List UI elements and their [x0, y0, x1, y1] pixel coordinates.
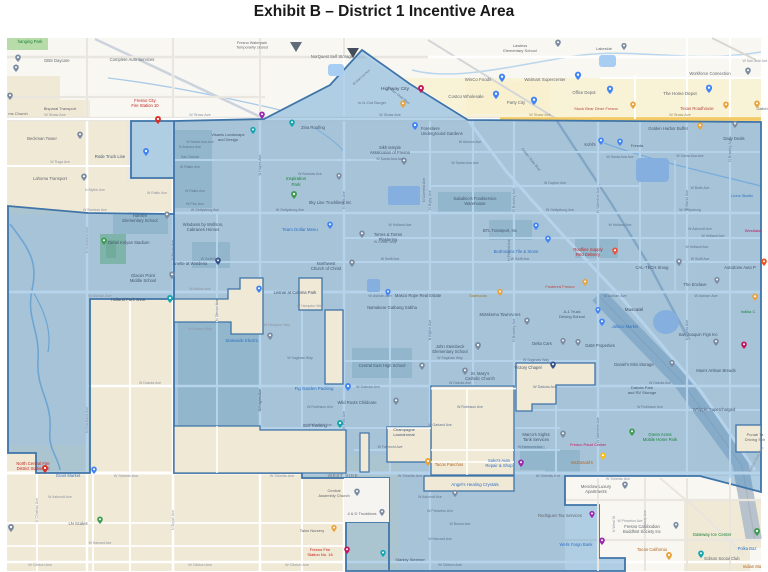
svg-text:W Holland Ave: W Holland Ave [702, 234, 725, 238]
svg-text:Golden State Blvd: Golden State Blvd [748, 446, 765, 473]
svg-text:Motskema TownAcres: Motskema TownAcres [480, 312, 521, 317]
svg-text:W Santa Ana Ave: W Santa Ana Ave [186, 140, 213, 144]
svg-text:W Robinson Ave: W Robinson Ave [457, 405, 483, 409]
svg-text:Association of Fresno: Association of Fresno [370, 150, 411, 155]
svg-text:Rode Truck Line: Rode Truck Line [95, 154, 126, 159]
svg-text:W Dakota Ave: W Dakota Ave [649, 381, 671, 385]
svg-text:W Princeton Ave: W Princeton Ave [617, 519, 642, 523]
svg-text:Grant Market: Grant Market [56, 473, 81, 478]
svg-text:Mobile Home Park: Mobile Home Park [643, 437, 678, 442]
svg-text:W Clinton Ave: W Clinton Ave [188, 563, 212, 567]
svg-text:Laundromat: Laundromat [393, 432, 415, 437]
svg-text:W Fairmont Ave: W Fairmont Ave [378, 445, 403, 449]
svg-text:N Marty Ave: N Marty Ave [643, 510, 647, 530]
svg-text:W Ashlan Ave: W Ashlan Ave [88, 294, 111, 298]
svg-text:W Clinton Ave: W Clinton Ave [285, 563, 309, 567]
svg-text:Lakeside: Lakeside [596, 46, 613, 51]
svg-text:W Hampton Way: W Hampton Way [297, 304, 324, 308]
svg-text:Station No. 16: Station No. 16 [307, 552, 333, 557]
svg-text:WinCo Foods: WinCo Foods [465, 77, 492, 82]
svg-text:Victory Chapel: Victory Chapel [514, 365, 541, 370]
svg-text:W Brown Ave: W Brown Ave [450, 522, 471, 526]
svg-text:W Griffith Way: W Griffith Way [374, 240, 397, 244]
svg-text:Muscatel: Muscatel [625, 307, 643, 312]
svg-text:W Shields Ave: W Shields Ave [270, 474, 294, 478]
svg-text:N Chateau Ave: N Chateau Ave [35, 498, 39, 522]
svg-text:Elementary School: Elementary School [503, 48, 537, 53]
svg-text:W Shields Ave: W Shields Ave [398, 474, 422, 478]
svg-text:Edison Social Club: Edison Social Club [704, 556, 740, 561]
svg-text:N Grantland Ave: N Grantland Ave [85, 407, 89, 433]
svg-text:Tacos Panchos: Tacos Panchos [435, 462, 463, 467]
svg-text:N Brawley Ave: N Brawley Ave [728, 138, 732, 161]
svg-text:W Garland Ave: W Garland Ave [308, 423, 332, 427]
svg-text:G&M Properties: G&M Properties [585, 343, 615, 348]
svg-text:Golden State Blvd: Golden State Blvd [520, 147, 541, 171]
svg-text:Warehouse: Warehouse [464, 201, 486, 206]
svg-text:N Blythe Ave: N Blythe Ave [428, 320, 432, 341]
svg-text:Stock Bear Diner Fresno: Stock Bear Diner Fresno [574, 106, 619, 111]
svg-text:N Hughes Ave: N Hughes Ave [258, 389, 262, 412]
svg-text:Texas Roadhouse: Texas Roadhouse [680, 106, 714, 111]
svg-text:Middle School: Middle School [130, 278, 156, 283]
svg-text:W Barstow Ave: W Barstow Ave [298, 172, 322, 176]
svg-text:Fresno Waterpark: Fresno Waterpark [237, 41, 267, 45]
svg-text:W Harvard Ave: W Harvard Ave [89, 541, 112, 545]
svg-text:W Santa Ana Ave: W Santa Ana Ave [451, 161, 478, 165]
svg-text:Maa's Artisan Breads: Maa's Artisan Breads [696, 368, 735, 373]
svg-text:W Gettysburg Ave: W Gettysburg Ave [546, 208, 574, 212]
svg-text:W Hampton Way: W Hampton Way [264, 323, 291, 327]
svg-text:Holland Park West: Holland Park West [111, 297, 146, 302]
svg-text:Workforce Connection: Workforce Connection [689, 71, 731, 76]
svg-text:W Shields Ave: W Shields Ave [536, 474, 560, 478]
svg-text:Kohl's: Kohl's [584, 142, 595, 147]
svg-text:Daily Deals: Daily Deals [723, 136, 744, 141]
svg-text:Stanley Steemer: Stanley Steemer [395, 557, 425, 562]
svg-text:N Bryan Ave: N Bryan Ave [171, 240, 175, 260]
svg-text:W Ashlan Ave: W Ashlan Ave [694, 294, 717, 298]
svg-text:W Princeton Ave: W Princeton Ave [427, 509, 453, 513]
svg-text:W Dakota Ave: W Dakota Ave [533, 385, 557, 389]
svg-text:W Gettysburg Ave: W Gettysburg Ave [276, 208, 304, 212]
svg-text:Angel's Healing Crystals: Angel's Healing Crystals [451, 482, 499, 487]
svg-text:W Tioga Ave: W Tioga Ave [50, 160, 70, 164]
svg-text:N Bigby Ave: N Bigby Ave [428, 190, 432, 210]
svg-text:Indian Ma: Indian Ma [743, 564, 762, 569]
svg-text:N Grantland Ave: N Grantland Ave [85, 227, 89, 253]
svg-text:Daniel's Mini Storage: Daniel's Mini Storage [614, 362, 654, 367]
svg-text:W Santa Ana Ave: W Santa Ana Ave [606, 155, 633, 159]
svg-text:NorQuest Self Storage: NorQuest Self Storage [311, 54, 354, 59]
svg-text:and Design: and Design [218, 137, 238, 142]
svg-text:Fostered Fresno: Fostered Fresno [545, 284, 575, 289]
svg-text:W Santa Ana Ave: W Santa Ana Ave [676, 154, 703, 158]
svg-text:W Shaw Ave: W Shaw Ave [44, 113, 65, 117]
svg-text:Party City: Party City [507, 100, 526, 105]
svg-text:Park: Park [291, 182, 301, 187]
svg-text:Driving School: Driving School [559, 314, 585, 319]
svg-text:Wild Roots Childcare: Wild Roots Childcare [337, 400, 377, 405]
svg-text:Red Delivery: Red Delivery [576, 252, 601, 257]
svg-text:Golden Harbor Buffet: Golden Harbor Buffet [648, 126, 688, 131]
svg-text:W Pico Ave: W Pico Ave [186, 202, 204, 206]
svg-text:Wells Fargo Bank: Wells Fargo Bank [560, 542, 594, 547]
svg-text:Elementary School: Elementary School [432, 349, 467, 354]
svg-text:Buddhist Society Inc: Buddhist Society Inc [623, 529, 661, 534]
svg-text:W Ashcroft Ave: W Ashcroft Ave [48, 495, 72, 499]
svg-text:Fire Station 10: Fire Station 10 [131, 103, 159, 108]
svg-text:Cabranes Homes: Cabranes Homes [187, 227, 220, 232]
svg-text:GBS Daycare: GBS Daycare [44, 58, 70, 63]
svg-text:W Rialto Ave: W Rialto Ave [180, 165, 200, 169]
svg-text:N Cornelia Ave: N Cornelia Ave [422, 178, 426, 202]
svg-text:N Valentine Ave: N Valentine Ave [596, 417, 600, 442]
svg-text:W Sussex Way: W Sussex Way [188, 327, 212, 331]
svg-text:Tacos California: Tacos California [637, 547, 667, 552]
svg-text:W Gettysburg Ave: W Gettysburg Ave [191, 208, 219, 212]
svg-text:W Shaw Ave: W Shaw Ave [189, 113, 210, 117]
svg-text:W Robinson Ave: W Robinson Ave [307, 405, 333, 409]
svg-text:W Barstow Ave: W Barstow Ave [83, 208, 107, 212]
svg-text:The Home Depot: The Home Depot [663, 91, 697, 96]
svg-text:hanging Park: hanging Park [18, 39, 44, 44]
svg-text:McDonald's: McDonald's [571, 460, 593, 465]
svg-text:Starbucks: Starbucks [469, 293, 487, 298]
svg-text:W Shields Ave: W Shields Ave [606, 477, 630, 481]
svg-text:W Marconi Ave: W Marconi Ave [352, 68, 371, 86]
svg-text:W Clinton Ave: W Clinton Ave [28, 563, 52, 567]
svg-text:W Alamos Ave: W Alamos Ave [459, 140, 482, 144]
svg-text:Lesnar at Caloma Park: Lesnar at Caloma Park [274, 290, 318, 295]
svg-text:W Harvard Ave: W Harvard Ave [428, 537, 452, 541]
svg-text:W Dayton Ave: W Dayton Ave [544, 181, 566, 185]
svg-text:4 & D Trucklines: 4 & D Trucklines [347, 511, 376, 516]
svg-text:Gateway Ice Center: Gateway Ice Center [693, 532, 732, 537]
svg-text:N Stevon Ave: N Stevon Ave [215, 299, 219, 321]
svg-text:W Shaw Ave: W Shaw Ave [669, 113, 690, 117]
svg-text:W Holland Ave: W Holland Ave [686, 245, 709, 249]
svg-text:Masco Rope Real Estate: Masco Rope Real Estate [395, 293, 442, 298]
svg-text:Bisparal Transport: Bisparal Transport [44, 106, 77, 111]
svg-text:Westlake: Westlake [745, 228, 762, 233]
svg-text:LN Scales: LN Scales [68, 521, 87, 526]
svg-text:Apartments: Apartments [585, 489, 606, 494]
svg-text:Central East High School: Central East High School [359, 363, 406, 368]
svg-text:Jalisco Market: Jalisco Market [612, 324, 640, 329]
svg-text:W Fairmont Ave: W Fairmont Ave [518, 445, 543, 449]
svg-text:W Dakota Ave: W Dakota Ave [139, 381, 161, 385]
svg-text:Whipple Supercharged: Whipple Supercharged [693, 407, 736, 412]
svg-text:Costco Wholesale: Costco Wholesale [448, 94, 484, 99]
svg-text:W Shaw Ave: W Shaw Ave [379, 113, 400, 117]
svg-text:Fredco Paud Center: Fredco Paud Center [570, 442, 607, 447]
svg-text:Underground Gardens: Underground Gardens [421, 131, 463, 136]
svg-text:Polka Baz: Polka Baz [738, 546, 757, 551]
svg-text:W Swift Ave: W Swift Ave [381, 257, 400, 261]
svg-text:W Ashcroft Ave: W Ashcroft Ave [418, 495, 442, 499]
svg-text:Elementary School: Elementary School [122, 218, 157, 223]
svg-text:Bedrosians Tile & Stone: Bedrosians Tile & Stone [494, 249, 539, 254]
svg-text:Driving Sch: Driving Sch [745, 437, 765, 442]
svg-text:W Rialto Ave: W Rialto Ave [185, 189, 205, 193]
svg-text:W Gettysburg: W Gettysburg [679, 208, 700, 212]
svg-text:W Garland Ave: W Garland Ave [428, 423, 452, 427]
svg-text:The Enclave: The Enclave [683, 282, 707, 287]
svg-text:N Polk Ave: N Polk Ave [342, 191, 346, 209]
svg-text:W Dakota Ave: W Dakota Ave [356, 385, 380, 389]
svg-text:Church of Christ: Church of Christ [311, 266, 342, 271]
svg-text:Delta Cars: Delta Cars [532, 341, 552, 346]
svg-text:Assembly Church: Assembly Church [318, 493, 349, 498]
svg-text:W Clinton Ave: W Clinton Ave [438, 563, 462, 567]
svg-text:BTL Transport, Inc: BTL Transport, Inc [483, 228, 517, 233]
svg-text:N Marks Ave: N Marks Ave [685, 320, 689, 340]
svg-text:AutoZone Auto P: AutoZone Auto P [724, 265, 756, 270]
svg-text:N Bryan Ave: N Bryan Ave [171, 510, 175, 530]
svg-text:N Polk Ave: N Polk Ave [342, 411, 346, 429]
svg-text:In-N-Out Burger: In-N-Out Burger [358, 100, 387, 105]
svg-text:Talos Nursery: Talos Nursery [300, 528, 324, 533]
svg-text:Tank Services: Tank Services [523, 437, 549, 442]
svg-text:Anette at Wardena: Anette at Wardena [173, 261, 208, 266]
svg-text:N Valentine Ave: N Valentine Ave [596, 187, 600, 212]
svg-text:and RV Storage: and RV Storage [628, 390, 657, 395]
svg-text:Office Depot: Office Depot [572, 90, 596, 95]
svg-text:W Shaw Ave: W Shaw Ave [529, 113, 550, 117]
svg-text:Namakear Gatbang Sabha: Namakear Gatbang Sabha [367, 305, 417, 310]
svg-text:W Swift Ave: W Swift Ave [201, 257, 220, 261]
svg-text:Statewide Electric: Statewide Electric [225, 338, 258, 343]
svg-text:W Ashlan Ave: W Ashlan Ave [603, 294, 626, 298]
svg-text:Inspiration: Inspiration [286, 176, 307, 181]
svg-text:Walmart Supercenter: Walmart Supercenter [524, 77, 566, 82]
svg-text:Team Dollar Menu: Team Dollar Menu [282, 227, 318, 232]
svg-text:N Brawley Ave: N Brawley Ave [512, 188, 516, 211]
svg-text:Rodriguez Tax Services: Rodriguez Tax Services [538, 513, 582, 518]
svg-text:N Hayes Ave: N Hayes Ave [258, 155, 262, 176]
svg-text:Lions Skatin: Lions Skatin [731, 193, 753, 198]
svg-text:W Swift Ave: W Swift Ave [691, 257, 710, 261]
svg-text:W Ashcroft Ave: W Ashcroft Ave [688, 227, 712, 231]
svg-text:W Butts Ave: W Butts Ave [691, 186, 710, 190]
svg-text:W Saginaw Way: W Saginaw Way [523, 358, 549, 362]
svg-text:N Blythe Ave: N Blythe Ave [85, 188, 105, 192]
svg-text:Galich: Galich [756, 106, 767, 111]
svg-text:N Arizona Ave: N Arizona Ave [179, 145, 201, 149]
svg-text:N Brawley Ave: N Brawley Ave [512, 318, 516, 341]
svg-text:W Holland Ave: W Holland Ave [389, 223, 412, 227]
svg-text:Indika C: Indika C [741, 309, 756, 314]
svg-text:Temporarily closed: Temporarily closed [236, 46, 268, 50]
svg-text:W Saginaw Way: W Saginaw Way [287, 356, 313, 360]
svg-text:W Santa Ana Ave: W Santa Ana Ave [376, 157, 403, 161]
svg-text:W Shields Ave: W Shields Ave [114, 474, 138, 478]
svg-text:W Swift Ave: W Swift Ave [511, 257, 530, 261]
svg-text:W Saginaw Way: W Saginaw Way [437, 356, 463, 360]
svg-text:CAL-TECH Smog: CAL-TECH Smog [635, 265, 669, 270]
svg-text:W Dakota Ave: W Dakota Ave [449, 381, 471, 385]
svg-text:N West St: N West St [612, 516, 616, 532]
svg-text:W Rialto Ave: W Rialto Ave [147, 191, 167, 195]
svg-text:W Ashlan Ave: W Ashlan Ave [189, 287, 211, 291]
svg-text:Derail Kolyan Stadium: Derail Kolyan Stadium [108, 240, 150, 245]
svg-text:Lahoma Transport: Lahoma Transport [33, 176, 68, 181]
svg-text:San Gabriel: San Gabriel [181, 155, 200, 159]
svg-text:W Robinson Ave: W Robinson Ave [637, 405, 663, 409]
svg-text:Fresda: Fresda [631, 143, 644, 148]
svg-text:W San Jose Ave: W San Jose Ave [743, 59, 768, 63]
svg-text:Complete Auto Services: Complete Auto Services [110, 57, 155, 62]
svg-text:W Holland Ave: W Holland Ave [609, 223, 632, 227]
svg-text:Fig Garden Packing: Fig Garden Packing [295, 386, 334, 391]
svg-text:Beckman Tower: Beckman Tower [27, 136, 57, 141]
svg-text:ms Church: ms Church [8, 111, 27, 116]
svg-text:Zina Roofing: Zina Roofing [301, 125, 325, 130]
svg-text:Repair & Shop: Repair & Shop [485, 463, 513, 468]
svg-text:WEST SIDE: WEST SIDE [328, 473, 359, 478]
